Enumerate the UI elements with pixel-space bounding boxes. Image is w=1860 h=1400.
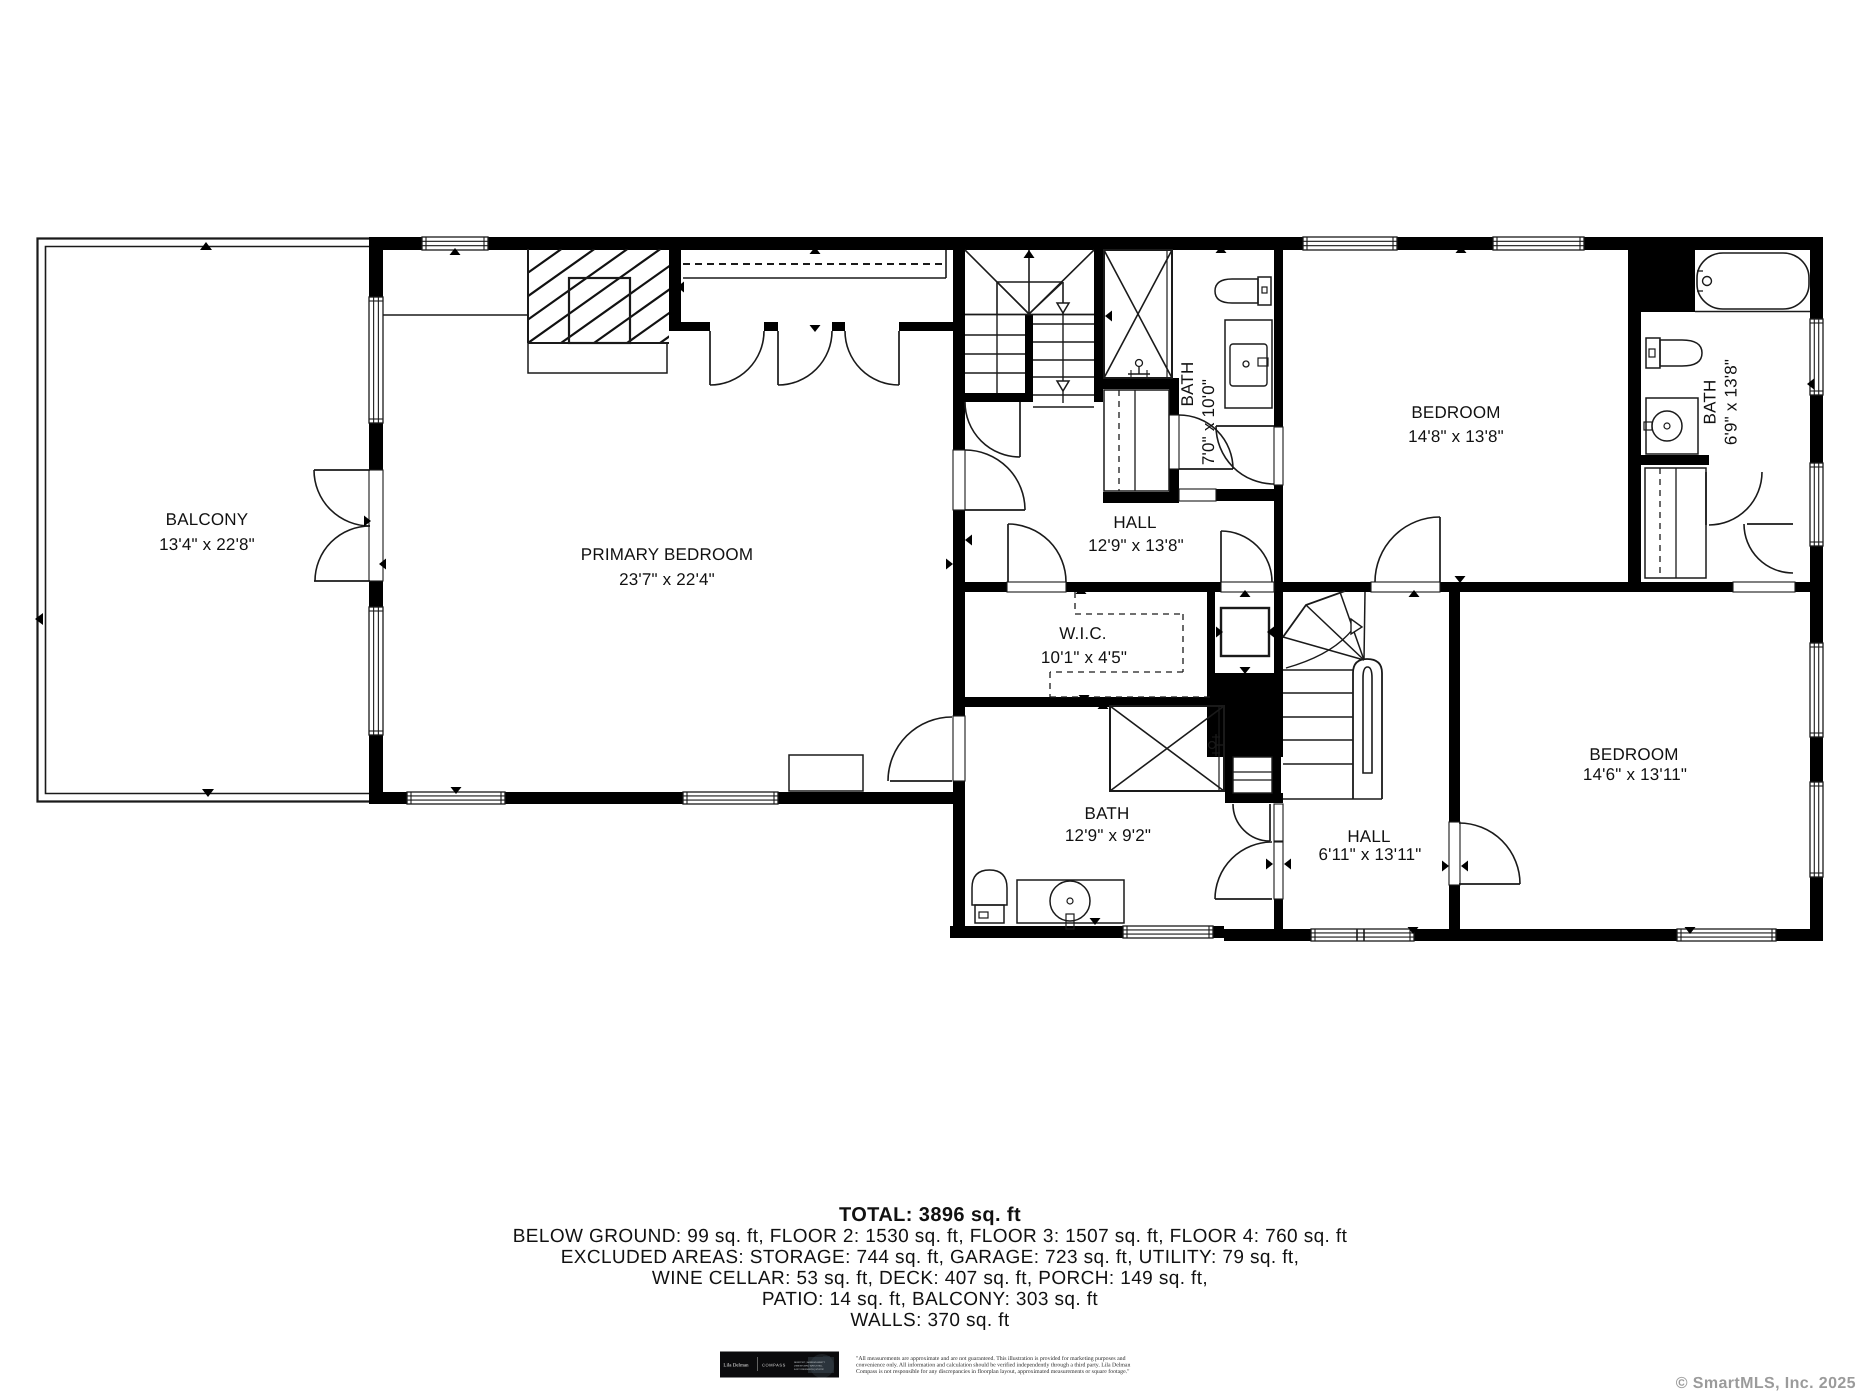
svg-text:7'0" x 10'0": 7'0" x 10'0" — [1199, 379, 1218, 465]
svg-text:BEDROOM: BEDROOM — [1411, 403, 1500, 422]
svg-text:BATH: BATH — [1085, 804, 1130, 823]
svg-text:PATIO: 14 sq. ft, BALCONY: 303: PATIO: 14 sq. ft, BALCONY: 303 sq. ft — [762, 1289, 1098, 1310]
svg-text:Compass is not responsible for: Compass is not responsible for any discr… — [856, 1368, 1129, 1375]
svg-text:BEDROOM: BEDROOM — [1589, 745, 1678, 764]
svg-text:W.I.C.: W.I.C. — [1059, 624, 1106, 643]
svg-text:COMPASS: COMPASS — [762, 1362, 786, 1367]
svg-text:© SmartMLS, Inc. 2025: © SmartMLS, Inc. 2025 — [1676, 1375, 1856, 1392]
svg-text:6'9" x 13'8": 6'9" x 13'8" — [1722, 359, 1741, 445]
svg-text:13'4" x 22'8": 13'4" x 22'8" — [159, 535, 255, 554]
svg-text:HALL: HALL — [1113, 513, 1156, 532]
svg-text:10'1" x 4'5": 10'1" x 4'5" — [1041, 648, 1127, 667]
svg-text:14'8" x 13'8": 14'8" x 13'8" — [1408, 427, 1504, 446]
svg-text:14'6" x 13'11": 14'6" x 13'11" — [1583, 765, 1687, 784]
svg-text:WINE CELLAR: 53 sq. ft, DECK:: WINE CELLAR: 53 sq. ft, DECK: 407 sq. ft… — [652, 1268, 1208, 1289]
svg-text:PRIMARY BEDROOM: PRIMARY BEDROOM — [581, 545, 753, 564]
svg-text:BALCONY: BALCONY — [166, 510, 249, 529]
svg-text:12'9" x 13'8": 12'9" x 13'8" — [1088, 536, 1184, 555]
svg-text:JAMESTOWN | WATCH HILL: JAMESTOWN | WATCH HILL — [794, 1365, 824, 1368]
svg-text:HALL: HALL — [1347, 827, 1390, 846]
svg-text:WALLS: 370 sq. ft: WALLS: 370 sq. ft — [850, 1310, 1010, 1331]
svg-text:6'11" x 13'11": 6'11" x 13'11" — [1319, 845, 1422, 864]
svg-text:"All measurements are approxim: "All measurements are approximate and ar… — [856, 1355, 1126, 1362]
svg-text:BELOW GROUND: 99 sq. ft, FLOOR: BELOW GROUND: 99 sq. ft, FLOOR 2: 1530 s… — [513, 1226, 1348, 1247]
svg-text:Lila Delman: Lila Delman — [723, 1363, 749, 1369]
svg-text:12'9" x 9'2": 12'9" x 9'2" — [1065, 826, 1151, 845]
svg-text:BATH: BATH — [1701, 380, 1720, 425]
svg-text:EXCLUDED AREAS: STORAGE: 744 s: EXCLUDED AREAS: STORAGE: 744 sq. ft, GAR… — [561, 1247, 1300, 1268]
svg-text:BATH: BATH — [1178, 362, 1197, 407]
svg-text:TOTAL: 3896 sq. ft: TOTAL: 3896 sq. ft — [839, 1204, 1021, 1226]
svg-text:EAST GREENWICH | MYSTIC: EAST GREENWICH | MYSTIC — [794, 1368, 824, 1371]
svg-text:23'7" x 22'4": 23'7" x 22'4" — [619, 570, 715, 589]
svg-text:convenience only. All informat: convenience only. All information and ca… — [856, 1362, 1130, 1369]
svg-text:NEWPORT | NARRAGANSETT: NEWPORT | NARRAGANSETT — [794, 1361, 826, 1364]
